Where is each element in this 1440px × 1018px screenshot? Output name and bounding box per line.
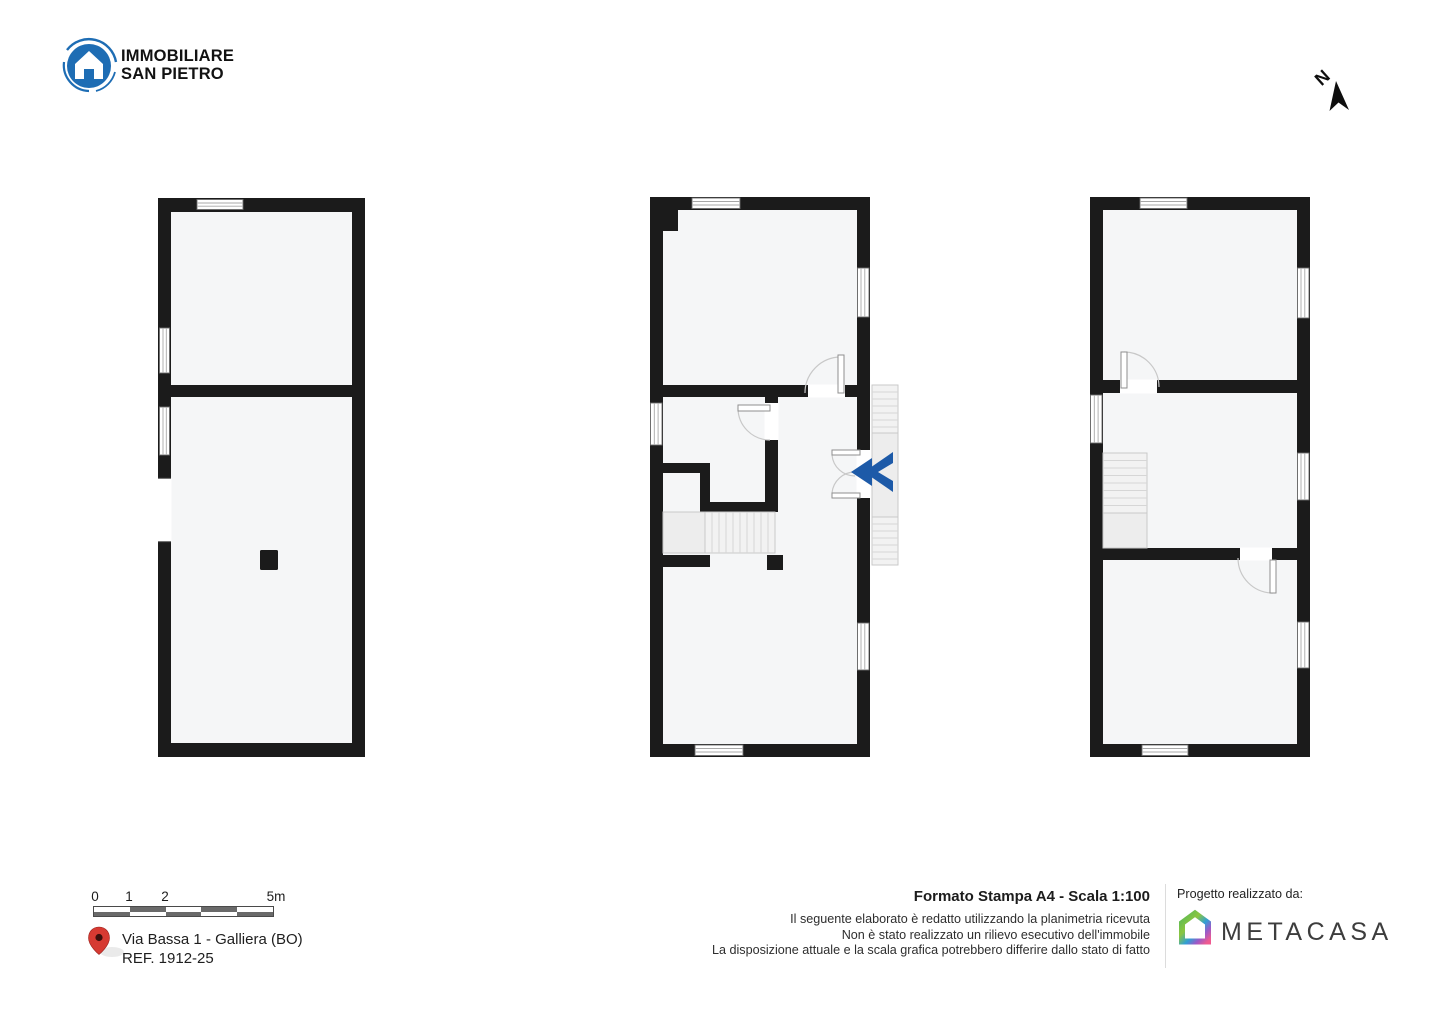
property-address: Via Bassa 1 - Galliera (BO) (122, 930, 303, 949)
pillar (260, 550, 278, 570)
wall-opening (158, 478, 172, 542)
floorplan-middle (650, 195, 902, 758)
scale-tick-1: 1 (125, 889, 133, 904)
brand-name-line1: IMMOBILIARE (121, 47, 234, 65)
property-address-block: Via Bassa 1 - Galliera (BO) REF. 1912-25 (122, 930, 303, 968)
credit-label: Progetto realizzato da: (1177, 887, 1303, 901)
north-arrow-icon: N (1310, 60, 1362, 120)
compass-label: N (1311, 66, 1334, 90)
metacasa-house-icon (1175, 907, 1215, 949)
floorplan-right (1090, 195, 1310, 758)
disclaimer-line-2: Non è stato realizzato un rilievo esecut… (690, 928, 1150, 944)
scale-bar-ruler (93, 906, 274, 917)
property-reference: REF. 1912-25 (122, 949, 303, 968)
scale-tick-0: 0 (91, 889, 99, 904)
interior-staircase (1103, 453, 1147, 548)
walls (158, 198, 365, 757)
credit-divider (1165, 884, 1166, 968)
brand-name: IMMOBILIARE SAN PIETRO (121, 47, 234, 83)
disclaimer-line-1: Il seguente elaborato è redatto utilizza… (690, 912, 1150, 928)
interior-staircase (663, 512, 775, 553)
floorplan-left (158, 197, 365, 758)
scale-tick-5m: 5m (267, 889, 286, 904)
print-info-block: Formato Stampa A4 - Scala 1:100 Il segue… (690, 888, 1150, 959)
print-format-title: Formato Stampa A4 - Scala 1:100 (690, 888, 1150, 905)
brand-logo-icon (58, 36, 120, 100)
walls (650, 197, 870, 757)
brand-name-line2: SAN PIETRO (121, 65, 234, 83)
credit-brand-name: METACASA (1221, 915, 1393, 949)
scale-tick-2: 2 (161, 889, 169, 904)
scale-bar: 0 1 2 5m (93, 889, 293, 919)
disclaimer-line-3: La disposizione attuale e la scala grafi… (690, 943, 1150, 959)
